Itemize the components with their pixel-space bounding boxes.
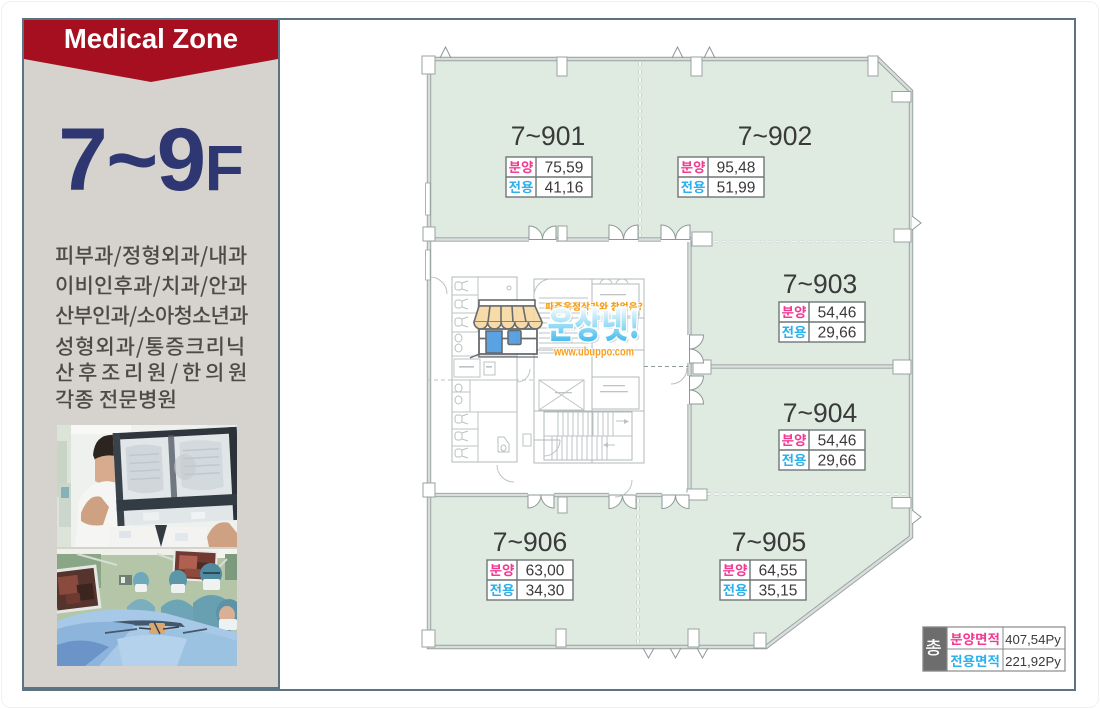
svg-text:7~906: 7~906 xyxy=(493,527,567,557)
svg-text:29,66: 29,66 xyxy=(818,325,857,342)
svg-text:35,15: 35,15 xyxy=(759,583,798,600)
svg-text:221,92Py: 221,92Py xyxy=(1005,654,1061,669)
svg-text:407,54Py: 407,54Py xyxy=(1005,632,1061,647)
svg-text:51,99: 51,99 xyxy=(717,180,756,197)
svg-text:7~904: 7~904 xyxy=(783,398,857,428)
svg-text:75,59: 75,59 xyxy=(545,160,584,177)
svg-text:54,46: 54,46 xyxy=(818,433,857,450)
svg-text:7~905: 7~905 xyxy=(732,527,806,557)
svg-text:29,66: 29,66 xyxy=(818,453,857,470)
svg-text:7~902: 7~902 xyxy=(738,121,812,151)
svg-text:64,55: 64,55 xyxy=(759,563,798,580)
svg-text:54,46: 54,46 xyxy=(818,305,857,322)
svg-text:7~903: 7~903 xyxy=(783,269,857,299)
svg-text:41,16: 41,16 xyxy=(545,180,584,197)
svg-text:7~901: 7~901 xyxy=(511,121,585,151)
svg-text:www.ubuppo.com: www.ubuppo.com xyxy=(553,345,634,359)
svg-text:63,00: 63,00 xyxy=(526,563,565,580)
svg-text:34,30: 34,30 xyxy=(526,583,565,600)
svg-text:95,48: 95,48 xyxy=(717,160,756,177)
